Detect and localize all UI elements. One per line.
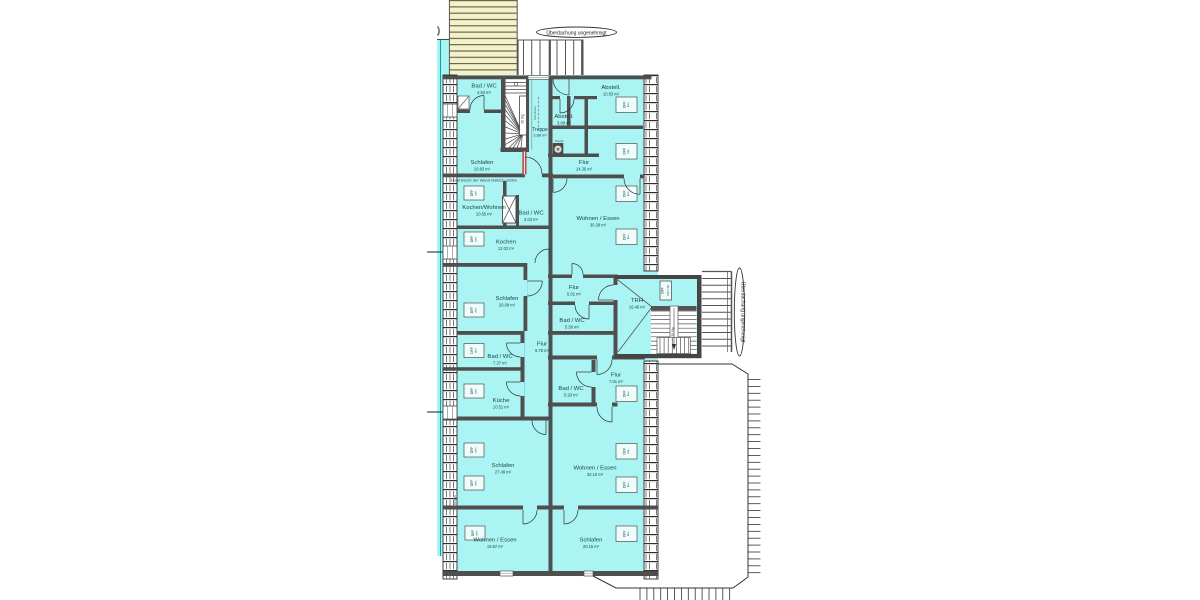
svg-text:5.01 m²: 5.01 m² [567,291,582,296]
svg-text:Flur: Flur [537,342,547,348]
svg-text:Bad / WC: Bad / WC [518,211,544,217]
svg-text:DFF: DFF [470,307,474,314]
svg-text:DFF: DFF [661,287,665,293]
svg-text:Küche: Küche [493,398,510,404]
svg-text:20.15 m²: 20.15 m² [583,544,600,549]
svg-text:DFF: DFF [622,530,626,537]
svg-text:4.53 m²: 4.53 m² [477,90,492,95]
svg-text:Durchbruch der Wand statisch p: Durchbruch der Wand statisch prüfen [451,178,517,183]
svg-text:DFF: DFF [622,190,626,197]
svg-text:Wohnen / Essen: Wohnen / Essen [576,216,619,222]
svg-text:Wohnen / Essen: Wohnen / Essen [473,538,516,544]
svg-text:20.08 m²: 20.08 m² [499,302,516,307]
svg-text:BRH: BRH [476,388,478,393]
svg-text:Kochen/Wohnen: Kochen/Wohnen [462,205,505,211]
svg-text:BRH: BRH [476,348,478,353]
svg-text:5.56 m²: 5.56 m² [565,324,580,329]
svg-text:BRH: BRH [476,236,478,241]
svg-text:BRH: BRH [476,307,478,312]
svg-text:12.02 m²: 12.02 m² [498,246,515,251]
svg-text:BRH: BRH [628,482,630,487]
svg-text:Überdachung ungenehmigt: Überdachung ungenehmigt [546,29,607,36]
svg-text:BRH: BRH [628,391,630,396]
svg-text:Flur: Flur [579,160,589,166]
svg-text:9.78 m²: 9.78 m² [535,348,550,353]
svg-text:20 Stg: 20 Stg [671,327,675,336]
svg-text:10.51 m²: 10.51 m² [493,404,510,409]
svg-text:16.49 m²: 16.49 m² [629,304,646,309]
svg-text:Wohnen / Essen: Wohnen / Essen [573,466,616,472]
svg-text:BRH: BRH [628,449,630,454]
svg-text:BRH: BRH [628,191,630,196]
svg-text:TRH: TRH [631,298,643,304]
svg-text:Abstell.: Abstell. [601,85,621,91]
svg-text:Kochen: Kochen [496,240,516,246]
svg-text:DFF: DFF [622,390,626,397]
svg-text:BRH: BRH [628,234,630,239]
svg-text:BRH: BRH [628,149,630,154]
svg-text:19.57 m²: 19.57 m² [487,544,504,549]
svg-text:BRH: BRH [476,447,478,452]
svg-text:Bad / WC: Bad / WC [559,318,585,324]
svg-text:BRH: BRH [628,102,630,107]
svg-text:27.49 m²: 27.49 m² [495,469,512,474]
svg-text:BRH: BRH [628,531,630,536]
svg-text:DFF: DFF [622,233,626,240]
svg-text:Dachkante: Dachkante [533,106,537,120]
svg-text:BRH 1.06: BRH 1.06 [667,285,670,296]
svg-text:10.83 m²: 10.83 m² [474,166,491,171]
svg-text:Kamin: Kamin [555,139,564,143]
svg-text:DFF: DFF [622,148,626,155]
svg-text:BRH: BRH [476,480,478,485]
svg-text:DFF: DFF [470,388,474,395]
svg-text:6941.26: 6941.26 [453,495,457,506]
svg-text:Flur: Flur [611,373,621,379]
svg-text:Bad / WC: Bad / WC [471,84,497,90]
svg-text:DFF: DFF [622,101,626,108]
svg-text:DFF: DFF [471,530,475,537]
svg-text:DFF: DFF [470,480,474,487]
svg-text:14.36 m²: 14.36 m² [576,166,593,171]
svg-text:3.03 m²: 3.03 m² [524,217,539,222]
svg-text:3.88 m²: 3.88 m² [533,133,547,138]
svg-text:Abstell.: Abstell. [554,114,574,120]
svg-text:DFF: DFF [622,481,626,488]
svg-text:3.08 m²: 3.08 m² [557,120,572,125]
svg-text:Bad / WC: Bad / WC [487,354,513,360]
svg-text:Flur: Flur [569,285,579,291]
svg-text:20 Stg: 20 Stg [520,114,524,123]
svg-text:Schlafen: Schlafen [492,463,515,469]
svg-text:Schlafen: Schlafen [471,160,494,166]
svg-text:7.37 m²: 7.37 m² [493,360,508,365]
svg-text:DFF: DFF [470,347,474,354]
svg-text:7.01 m²: 7.01 m² [609,379,624,384]
svg-text:DFF: DFF [470,447,474,454]
svg-text:DFF: DFF [470,190,474,197]
svg-text:BRH: BRH [477,530,479,535]
svg-text:BRH: BRH [476,190,478,195]
svg-text:5.93 m²: 5.93 m² [564,392,579,397]
svg-text:10.65 m²: 10.65 m² [476,211,493,216]
svg-text:Überdachung ungenehmigt: Überdachung ungenehmigt [740,282,747,343]
svg-text:Schlafen: Schlafen [580,538,603,544]
svg-text:30.38 m²: 30.38 m² [590,222,607,227]
svg-text:DFF: DFF [470,236,474,243]
svg-text:Bad / WC: Bad / WC [558,386,584,392]
svg-text:32.10 m²: 32.10 m² [587,472,604,477]
svg-text:10.83 m²: 10.83 m² [603,91,620,96]
svg-text:Schlafen: Schlafen [496,296,519,302]
svg-text:DFF: DFF [622,448,626,455]
